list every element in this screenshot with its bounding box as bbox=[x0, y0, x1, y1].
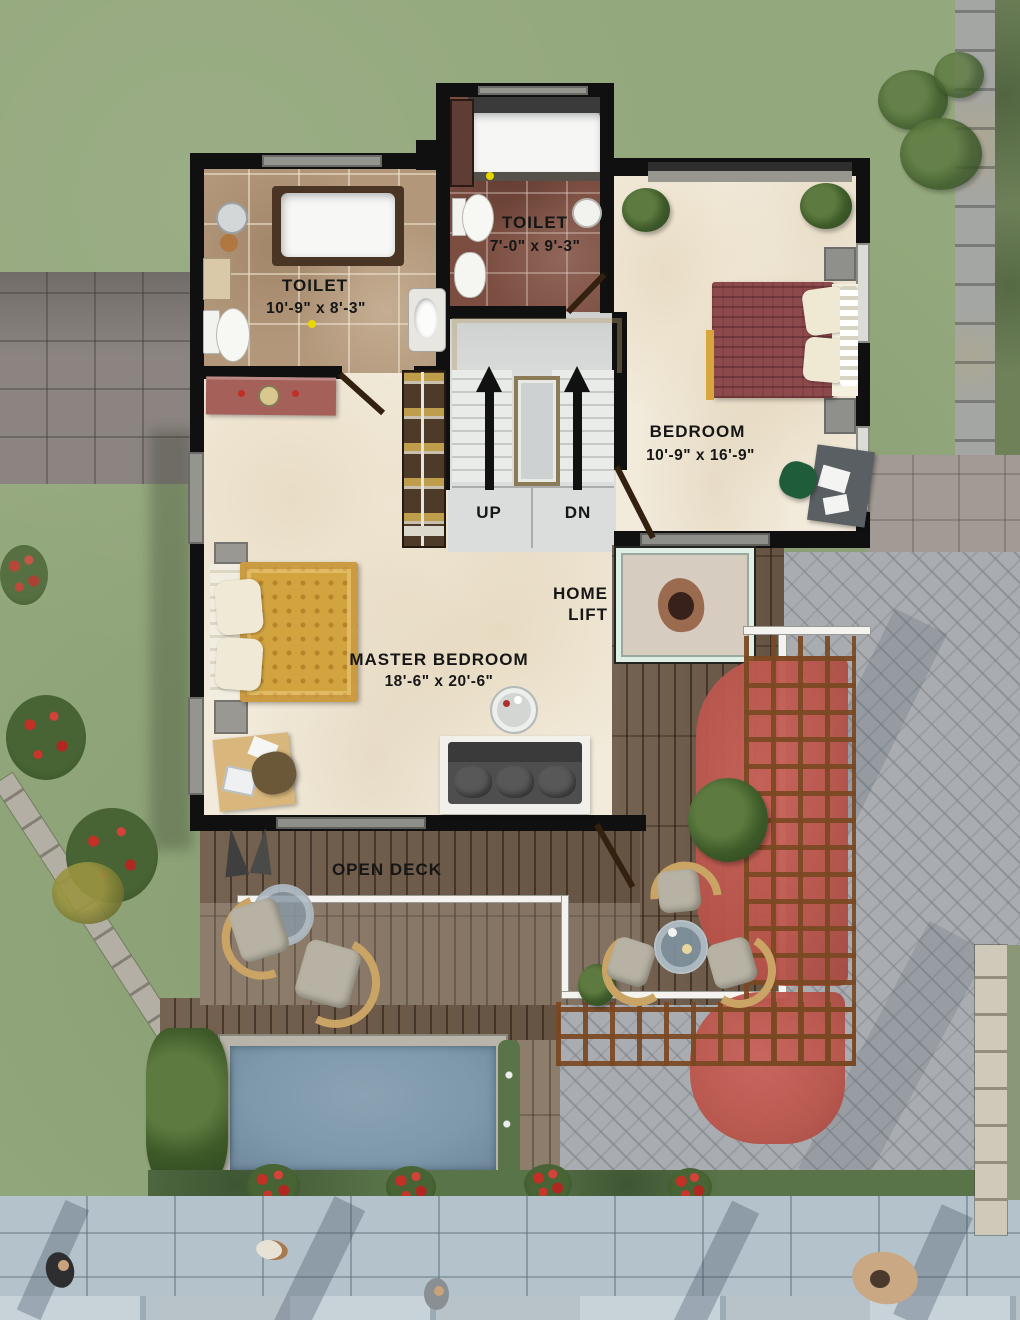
shrub-icon bbox=[934, 52, 984, 98]
stone-wall-right bbox=[975, 945, 1007, 1235]
glass-table-round bbox=[490, 686, 538, 734]
room-dims-toilet-center: 7'-0" x 9'-3" bbox=[470, 238, 600, 256]
stair-landing-line bbox=[531, 488, 533, 548]
deck-railing bbox=[562, 896, 568, 998]
bed-frame-strip bbox=[706, 330, 714, 400]
sofa-cushion bbox=[538, 766, 576, 798]
pool-side-hedge bbox=[498, 1040, 520, 1180]
home-lift-label-line1: HOME bbox=[540, 584, 608, 604]
lift-chair-seat bbox=[668, 592, 694, 620]
sofa-cushion bbox=[496, 766, 534, 798]
flower-vase-icon bbox=[503, 700, 510, 707]
potted-plant-icon bbox=[800, 183, 852, 229]
flower-bed-icon bbox=[0, 545, 48, 605]
up-arrow-icon bbox=[476, 366, 502, 392]
potted-plant-icon bbox=[622, 188, 670, 232]
room-label-toilet-center: TOILET bbox=[480, 213, 590, 233]
room-label-toilet-left: TOILET bbox=[240, 276, 390, 296]
shrub-icon bbox=[900, 118, 982, 190]
promenade-edge-strip bbox=[0, 1296, 1020, 1320]
accent-dot bbox=[308, 320, 316, 328]
wardrobe-shelf bbox=[404, 526, 444, 536]
window bbox=[188, 452, 204, 544]
deck-plant-icon bbox=[688, 778, 768, 862]
sofa-backrest bbox=[448, 742, 582, 762]
flower-vase-icon bbox=[292, 390, 299, 397]
room-label-bedroom: BEDROOM bbox=[635, 422, 760, 442]
flower-vase-icon bbox=[238, 390, 245, 397]
bathtub-basin bbox=[281, 193, 395, 257]
window bbox=[856, 243, 870, 343]
home-lift-label-line2: LIFT bbox=[540, 605, 608, 625]
dn-arrow-icon bbox=[564, 366, 590, 392]
pillow bbox=[214, 636, 264, 691]
deck-label: OPEN DECK bbox=[322, 860, 452, 880]
paving-right-mid bbox=[868, 455, 1020, 565]
stair-landing-line bbox=[452, 486, 614, 488]
wardrobe bbox=[402, 370, 446, 548]
swimming-pool bbox=[230, 1046, 496, 1170]
stair-landing-trim bbox=[452, 318, 622, 373]
stairs-up-label: UP bbox=[466, 503, 512, 523]
person-head bbox=[58, 1260, 69, 1271]
pool-side-bushes bbox=[146, 1028, 228, 1188]
nightstand bbox=[824, 247, 856, 281]
dresser-mirror bbox=[258, 385, 280, 407]
shaft-niche bbox=[450, 99, 474, 187]
pergola-trellis bbox=[556, 1002, 856, 1066]
window bbox=[262, 155, 382, 167]
window-sill-bedroom bbox=[648, 171, 852, 182]
basket-round bbox=[220, 234, 238, 252]
up-arrow-shaft bbox=[485, 390, 494, 490]
room-dims-bedroom: 10'-9" x 16'-9" bbox=[628, 447, 773, 465]
side-table-round bbox=[216, 202, 248, 234]
room-label-master-bedroom: MASTER BEDROOM bbox=[339, 650, 539, 670]
tub-counter-band bbox=[468, 97, 600, 113]
nightstand bbox=[214, 542, 248, 564]
person-head bbox=[870, 1270, 890, 1288]
house-shadow-left bbox=[150, 430, 192, 850]
window bbox=[188, 697, 204, 795]
bush-icon bbox=[52, 862, 124, 924]
sliding-door-master bbox=[276, 817, 426, 829]
sofa-cushion bbox=[454, 766, 492, 798]
bathtub bbox=[470, 113, 600, 175]
flower-bed-icon bbox=[6, 695, 86, 780]
window-band-bedroom bbox=[648, 162, 852, 171]
floor-plan-canvas: TOILET 10'-9" x 8'-3" TOILET 7'-0" x 9'-… bbox=[0, 0, 1020, 1320]
accent-dot bbox=[486, 172, 494, 180]
sink-basin bbox=[414, 298, 438, 338]
garden-right-bottom bbox=[1007, 945, 1020, 1200]
dn-arrow-shaft bbox=[573, 390, 582, 490]
person-head bbox=[434, 1286, 444, 1296]
nightstand bbox=[214, 700, 248, 734]
room-dims-master-bedroom: 18'-6" x 20'-6" bbox=[349, 673, 529, 691]
stair-void bbox=[514, 376, 560, 486]
room-dims-toilet-left: 10'-9" x 8'-3" bbox=[236, 300, 396, 318]
cup-icon bbox=[514, 696, 522, 704]
sliding-door-bedroom bbox=[640, 533, 770, 546]
bidet bbox=[454, 252, 486, 298]
hedge-right bbox=[995, 0, 1020, 478]
towel-shelf bbox=[203, 258, 231, 300]
wall bbox=[416, 140, 436, 170]
stairs-dn-label: DN bbox=[555, 503, 601, 523]
pillow-striped bbox=[840, 286, 858, 386]
nightstand bbox=[824, 398, 856, 434]
pillow bbox=[214, 578, 265, 636]
plate-icon bbox=[682, 944, 692, 954]
deck-chair-cushion bbox=[656, 868, 702, 914]
window bbox=[478, 86, 588, 95]
deck-railing bbox=[744, 627, 870, 634]
